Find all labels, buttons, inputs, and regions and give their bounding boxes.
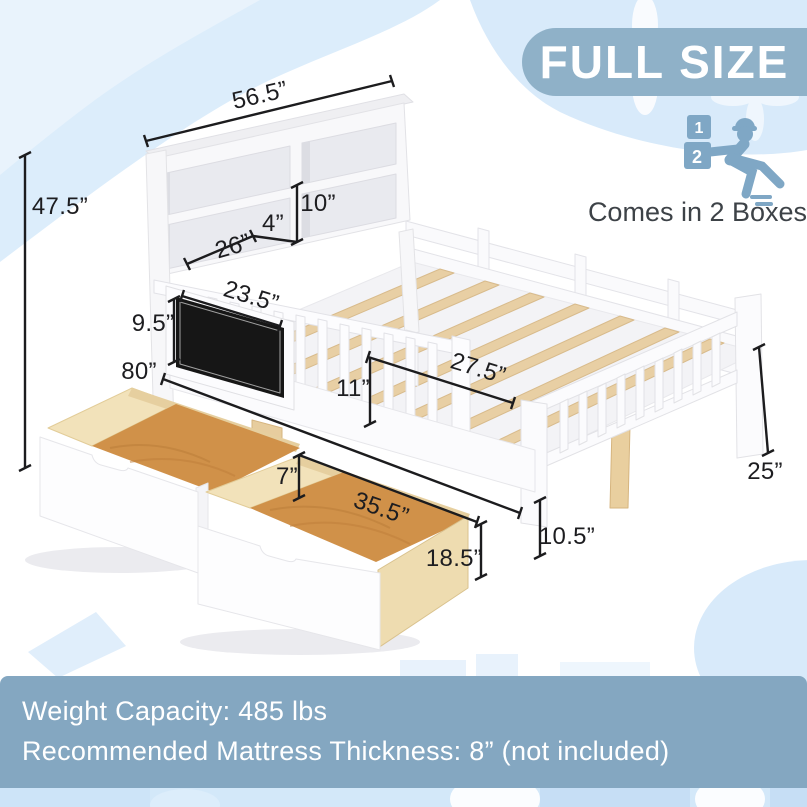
- dimension-label-underbed-clearance: 10.5”: [539, 523, 595, 551]
- box-1-label: 1: [695, 120, 704, 137]
- dimension-label-shelf-lip: 4”: [262, 210, 284, 238]
- footer-bar: Weight Capacity: 485 lbs Recommended Mat…: [0, 676, 807, 788]
- dimension-label-drawer-height: 7”: [276, 463, 298, 491]
- full-size-badge: FULL SIZE: [522, 28, 807, 96]
- dimension-label-cubby-height: 10”: [300, 190, 336, 218]
- dimension-label-chalkboard-height: 9.5”: [132, 310, 175, 338]
- dimension-label-guardrail-height: 11”: [336, 375, 370, 403]
- dimension-label-overall-height: 47.5”: [32, 193, 88, 221]
- box-2-label: 2: [692, 147, 702, 167]
- product-infographic: 1 2: [0, 0, 807, 807]
- delivery-caption: Comes in 2 Boxes: [575, 197, 807, 228]
- dimension-label-drawer-depth: 18.5”: [426, 545, 482, 573]
- center-support-leg: [610, 426, 630, 508]
- dimension-label-bed-length: 80”: [121, 358, 157, 386]
- badge-label: FULL SIZE: [540, 35, 790, 89]
- dimension-label-footboard-height: 25”: [747, 458, 783, 486]
- weight-capacity-text: Weight Capacity: 485 lbs: [22, 696, 327, 727]
- mattress-note-text: Recommended Mattress Thickness: 8” (not …: [22, 736, 669, 767]
